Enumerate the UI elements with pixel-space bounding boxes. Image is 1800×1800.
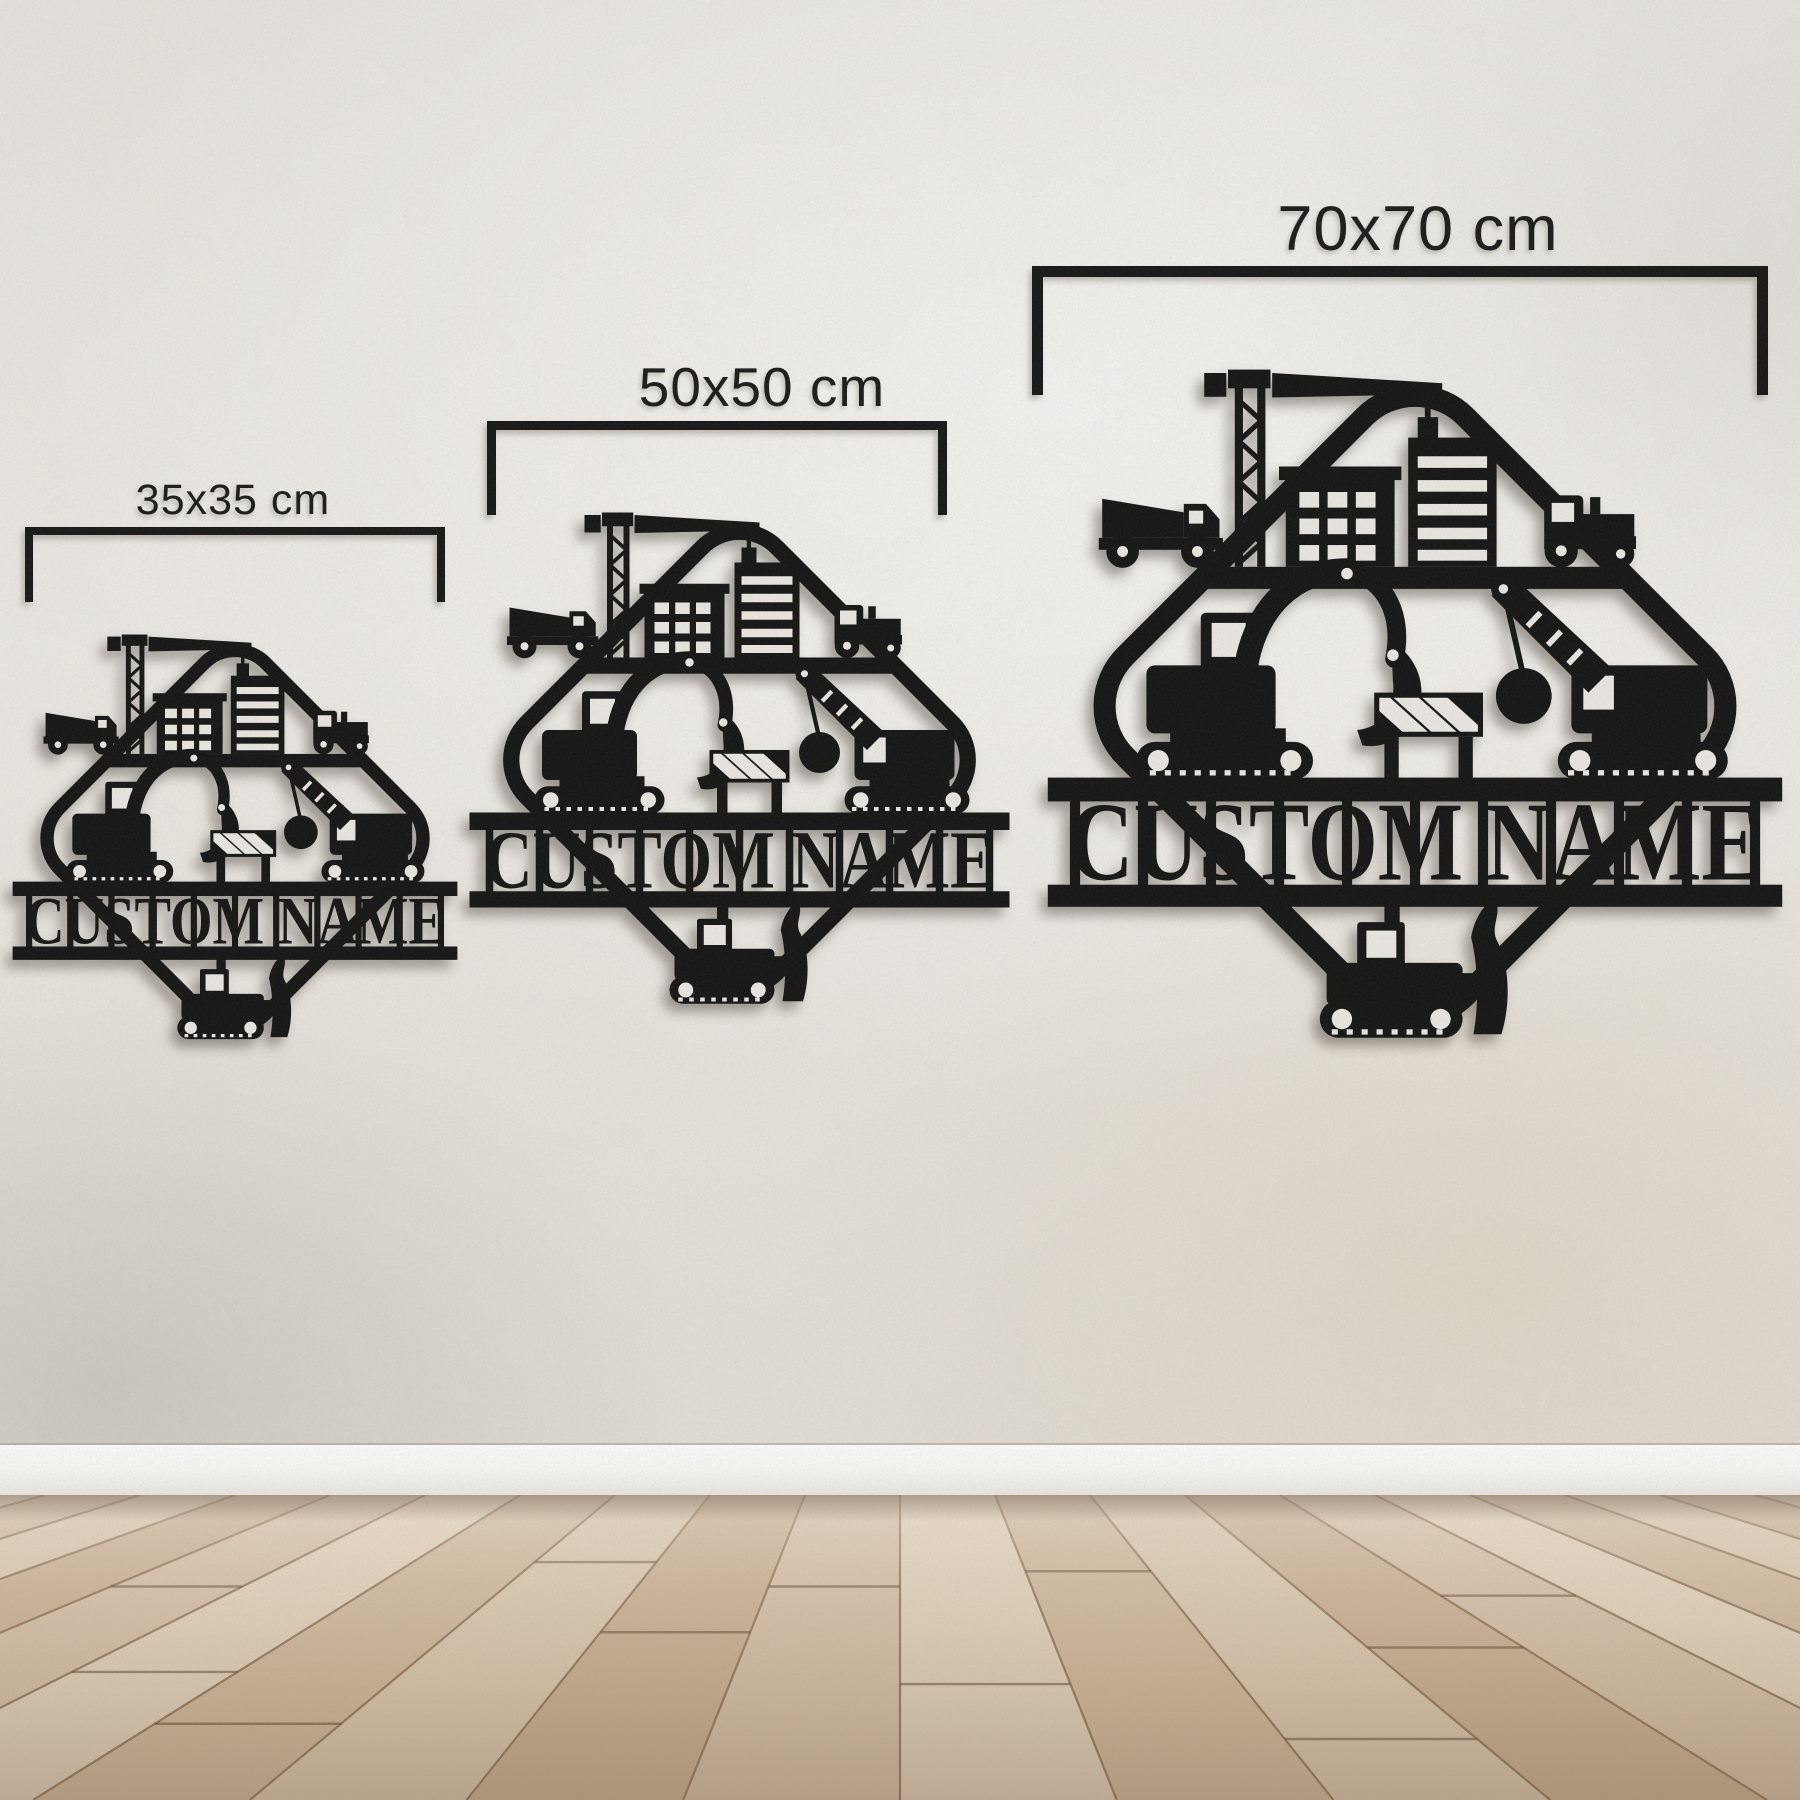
- metal-sign-35: CUSTOM NAME: [0, 616, 472, 1069]
- size-label-35: 35x35 cm: [136, 479, 330, 522]
- custom-name-text-50: CUSTOM NAME: [485, 814, 995, 906]
- size-label-70: 70x70 cm: [1277, 198, 1558, 261]
- metal-sign-70: CUSTOM NAME: [1024, 339, 1800, 1087]
- floor-planks: [0, 1495, 1800, 1800]
- metal-sign-50: CUSTOM NAME: [452, 490, 1027, 1040]
- size-label-50: 50x50 cm: [639, 360, 885, 415]
- floor: [0, 1495, 1800, 1800]
- product-mockup-scene: 35x35 cm CUSTOM NAME 50x50 cm CUSTOM NAM…: [0, 0, 1800, 1800]
- size-bracket-35: [25, 527, 445, 602]
- baseboard: [0, 1445, 1800, 1495]
- custom-name-text-35: CUSTOM NAME: [25, 882, 445, 958]
- custom-name-text-70: CUSTOM NAME: [1068, 781, 1762, 905]
